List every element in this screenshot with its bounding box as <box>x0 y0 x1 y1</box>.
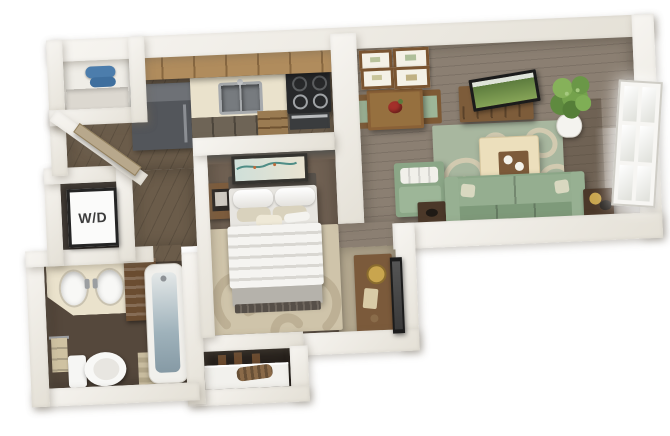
frame-art-mark <box>406 74 417 80</box>
cup-icon <box>515 162 524 171</box>
cup-icon <box>503 155 512 164</box>
sofa-pillow-right <box>554 179 570 194</box>
window-pane <box>636 165 652 201</box>
sofa-pillow-left <box>460 184 475 198</box>
floorplan-image: W/D <box>0 0 670 436</box>
refrigerator-handle <box>183 104 188 142</box>
bed <box>228 173 322 315</box>
window-pane <box>618 164 634 200</box>
hanging-item <box>234 352 243 364</box>
floorplan-rotated-group: W/D <box>0 0 670 436</box>
window-pane <box>640 87 656 123</box>
window-panes <box>618 86 657 202</box>
window-pane <box>620 125 636 161</box>
towel <box>51 338 68 373</box>
pillow-right <box>275 187 316 207</box>
photo-frame-inner <box>215 192 228 207</box>
mirror-glass <box>392 261 403 329</box>
entry-closet-shelf <box>66 87 129 110</box>
blue-towel-stack <box>90 76 116 87</box>
dining-table <box>366 88 424 130</box>
bathtub-basin <box>151 272 180 373</box>
potted-plant <box>546 73 593 141</box>
frame-art-mark <box>372 75 382 80</box>
striped-duvet <box>227 223 324 289</box>
wall-frame-3 <box>361 67 395 89</box>
art-abstract-landscape <box>234 157 299 176</box>
side-table-right <box>583 188 614 217</box>
sink-basin-left <box>221 85 240 112</box>
bowl-icon <box>426 209 438 218</box>
serving-tray <box>498 151 529 176</box>
faucet-icon <box>84 279 89 289</box>
toilet-seat-inner <box>93 358 120 381</box>
wd-label: W/D <box>78 209 107 226</box>
frame-art-mark <box>370 57 380 62</box>
faucet-icon <box>92 278 97 288</box>
table-lamp-gold <box>366 264 387 285</box>
hanging-item <box>218 355 226 365</box>
knob-icon <box>370 314 378 322</box>
hanging-item <box>252 353 260 363</box>
photo-frame <box>212 189 231 212</box>
lamp-shade-icon <box>599 200 611 211</box>
wd-sign: W/D <box>67 188 119 248</box>
pillow-left <box>233 189 274 209</box>
window-pane <box>638 126 654 162</box>
kitchen-sink <box>218 81 263 115</box>
wall-frame-4 <box>393 66 430 90</box>
chaise-pillow <box>400 166 439 184</box>
plant-foliage <box>546 73 592 121</box>
sink-basin-right <box>241 84 260 111</box>
stove <box>285 68 332 130</box>
bed-wall-art <box>231 153 308 184</box>
window-pane <box>622 86 638 122</box>
window <box>611 80 663 208</box>
frame-art-mark <box>405 54 416 60</box>
candle <box>363 288 379 309</box>
bedroom-console-table <box>354 254 395 336</box>
